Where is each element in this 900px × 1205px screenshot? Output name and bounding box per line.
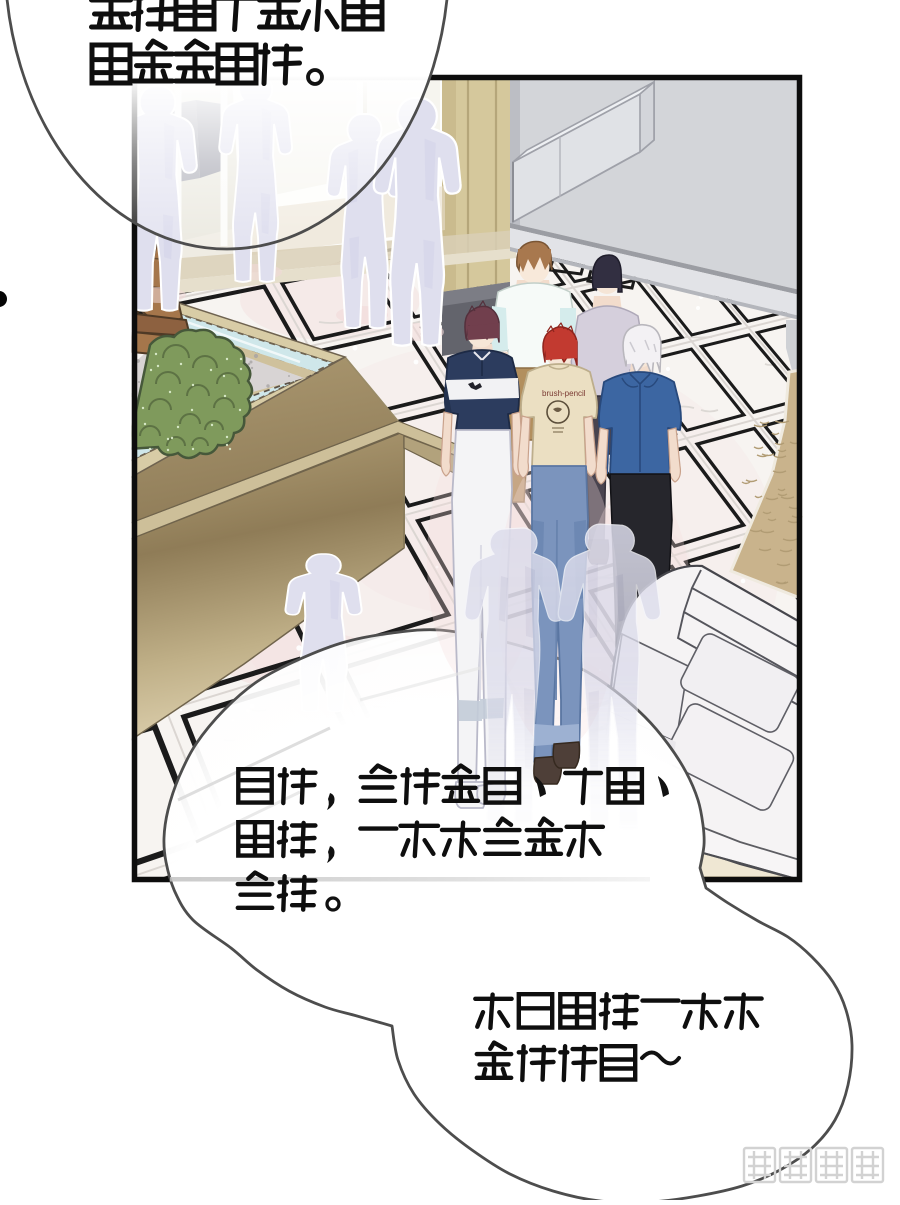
- svg-text:brush-pencil: brush-pencil: [542, 389, 586, 398]
